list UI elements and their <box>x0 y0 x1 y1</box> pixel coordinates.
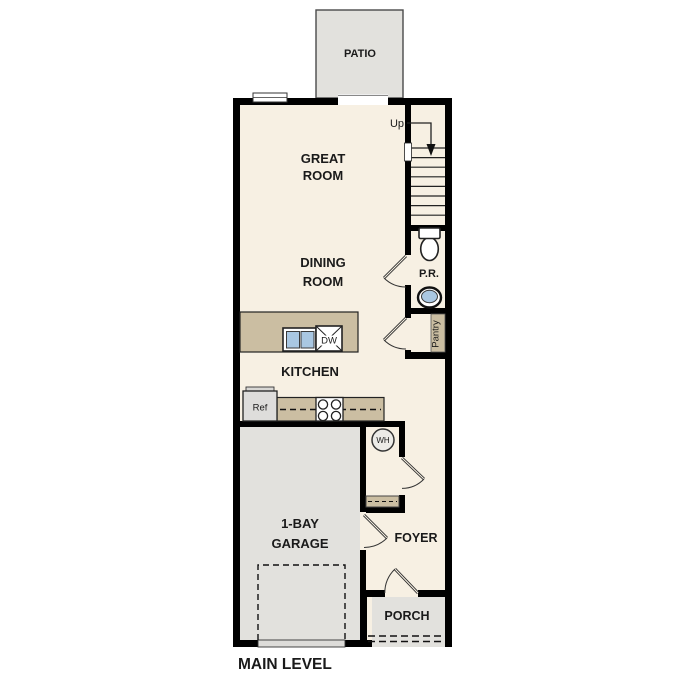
porch-label: PORCH <box>384 609 429 623</box>
foyer-label: FOYER <box>394 531 437 545</box>
garage-top-wall <box>233 421 405 427</box>
dining-room-label-line2: ROOM <box>303 274 343 289</box>
garage-label-line2: GARAGE <box>271 536 328 551</box>
burner-bottom-left <box>318 411 327 420</box>
water-heater-closet-right-wall <box>399 427 405 457</box>
pantry-bottom-wall <box>405 352 445 359</box>
great-room-label-line2: ROOM <box>303 168 343 183</box>
powder-room-bottom-wall <box>405 308 445 314</box>
powder-room-sink-basin <box>422 290 438 302</box>
island-sink-basin-left <box>287 332 300 349</box>
water-heater-closet-bottom-wall <box>360 507 405 513</box>
overhead-garage-door <box>258 640 345 647</box>
toilet-tank-icon <box>419 228 440 239</box>
powder-room-label: P.R. <box>419 268 439 280</box>
floor-plan-drawing: PATIO Up Pantry DW Ref <box>0 0 687 687</box>
porch-left-wall <box>360 590 367 647</box>
stair-partition-wall <box>405 105 411 255</box>
kitchen-label: KITCHEN <box>281 364 339 379</box>
dining-room-label-line1: DINING <box>300 255 346 270</box>
burner-top-right <box>331 400 340 409</box>
toilet-bowl-icon <box>421 238 439 261</box>
pantry-label: Pantry <box>431 320 442 348</box>
island-sink-basin-right <box>301 332 314 349</box>
floor-plan-page: PATIO Up Pantry DW Ref <box>0 0 687 687</box>
stair-railing <box>405 143 412 161</box>
water-heater-closet-jamb <box>399 495 405 508</box>
front-door-opening <box>385 590 418 597</box>
garage-label-line1: 1-BAY <box>281 516 319 531</box>
plan-title: MAIN LEVEL <box>238 656 332 673</box>
great-room-label-line1: GREAT <box>301 151 346 166</box>
dishwasher-label: DW <box>321 336 337 347</box>
stairs-up-label: Up <box>390 118 404 130</box>
water-heater-label: WH <box>376 436 390 445</box>
burner-top-left <box>318 400 327 409</box>
burner-bottom-right <box>331 411 340 420</box>
patio-label: PATIO <box>344 48 376 60</box>
refrigerator-label: Ref <box>253 403 268 414</box>
